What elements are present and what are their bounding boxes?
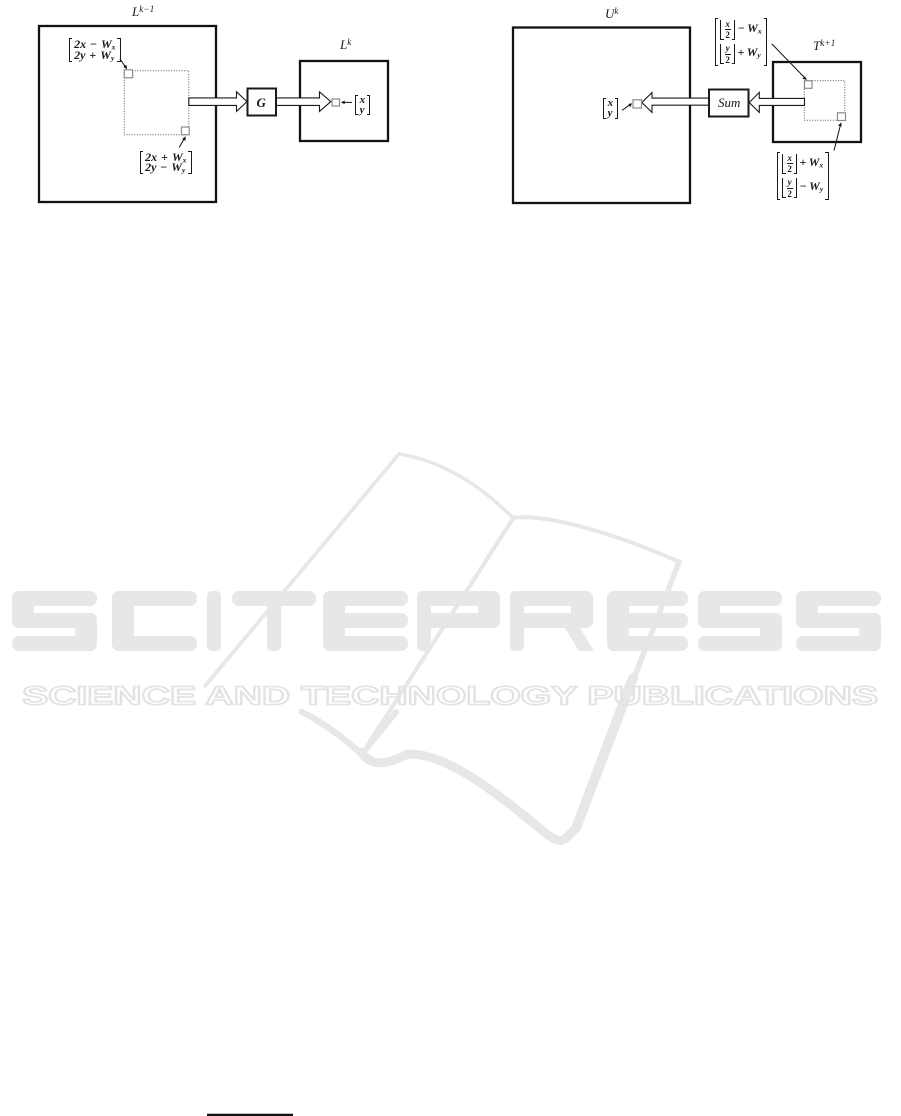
svg-text:SCIENCE AND TECHNOLOGY PUBLICA: SCIENCE AND TECHNOLOGY PUBLICATIONS — [22, 681, 878, 711]
